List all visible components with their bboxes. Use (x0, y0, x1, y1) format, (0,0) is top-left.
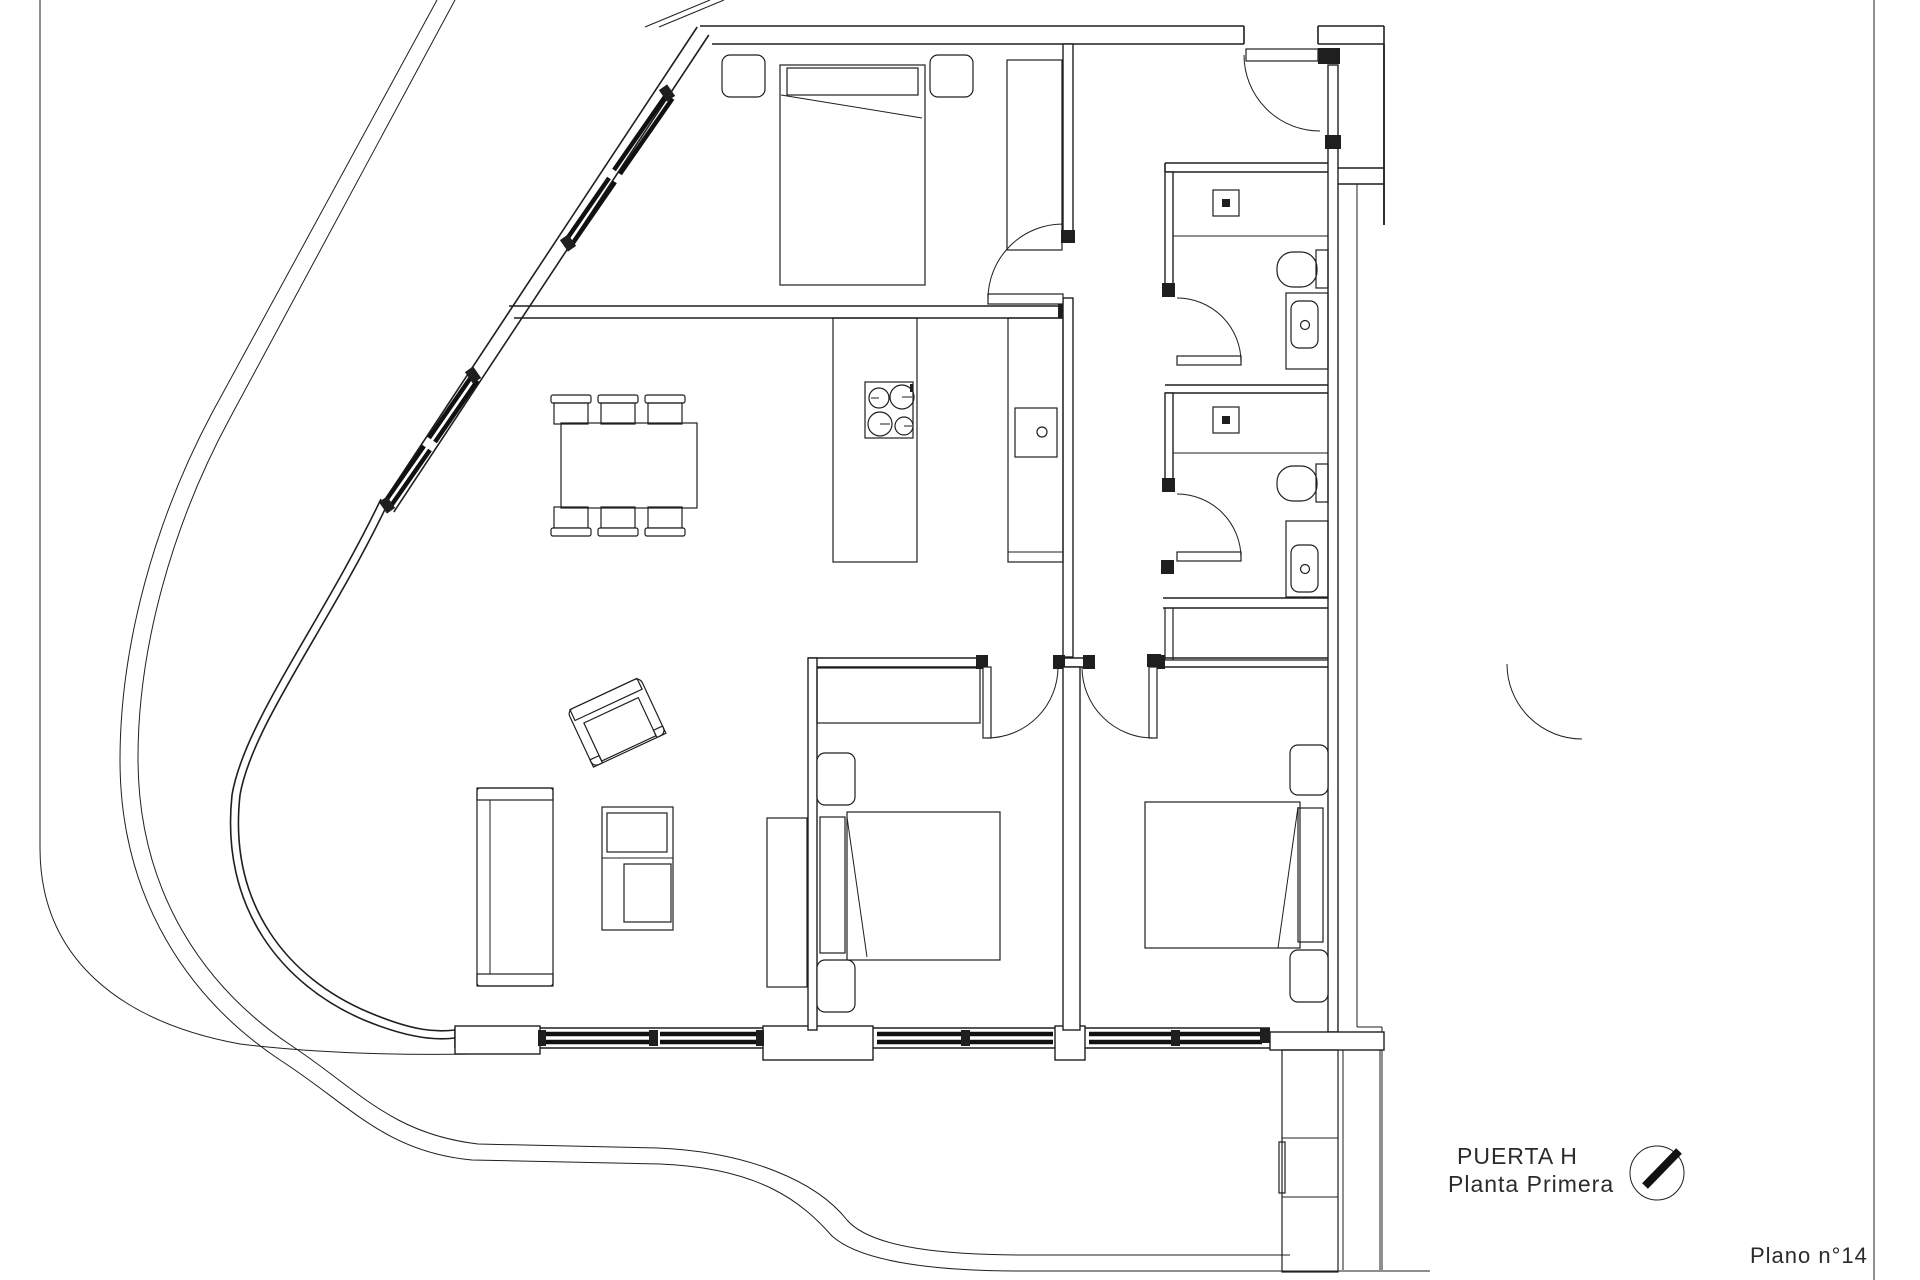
bedroom3-nightstand-bottom (1290, 950, 1328, 1002)
door-label: PUERTA H (1457, 1143, 1578, 1169)
dining-chairs-bottom (551, 507, 685, 536)
bedroom3-door (1082, 667, 1157, 738)
bedroom1-wardrobe (1007, 60, 1062, 250)
bedroom3-headboard (1298, 808, 1323, 942)
south-wall-pillar-1 (763, 1026, 873, 1060)
shower1-drain-icon (1213, 190, 1239, 216)
cooktop (865, 382, 914, 438)
facade-window-2 (379, 366, 481, 513)
corridor-wall (1357, 184, 1382, 1270)
hall-west-wall-upper (1063, 44, 1073, 242)
kitchen-island (833, 318, 917, 562)
bedroom1-door (988, 224, 1063, 304)
bedroom1-nightstand-left (722, 55, 765, 97)
kitchen-north-wall (509, 306, 1063, 318)
facade-window-1 (560, 84, 675, 251)
bathroom1-west-wall (1165, 172, 1173, 285)
hall-west-wall-lower (1063, 298, 1073, 657)
dining-set (551, 395, 697, 536)
bedroom2-closet (817, 668, 980, 723)
bedroom3-windows (1089, 1028, 1270, 1046)
floorplan-drawing: PUERTA H Planta Primera Plano n°14 (0, 0, 1920, 1280)
site-outer-line (40, 0, 540, 1054)
bedroom2-headboard (820, 817, 845, 953)
bedroom2-nightstand-top (817, 753, 855, 805)
bathroom2-west-wall (1165, 393, 1173, 480)
kitchen-counter (1008, 318, 1063, 562)
bedroom2 (817, 668, 1000, 1012)
vanity-sink2 (1286, 521, 1328, 597)
bedroom3 (1145, 745, 1328, 1002)
bedroom3-bed (1145, 802, 1300, 948)
bedroom1-nightstand-right (930, 55, 973, 97)
neighbor-door-arc (1507, 664, 1582, 739)
site-top-diagonal (645, 0, 724, 27)
bedroom2-nightstand-bottom (817, 960, 855, 1012)
kitchen-sink (1015, 408, 1057, 457)
dining-chairs-top (551, 395, 685, 424)
shower2-drain-icon (1213, 407, 1239, 433)
bathroom-divider-wall (1165, 385, 1338, 393)
dining-table (561, 423, 697, 508)
bedroom3-nightstand-top (1290, 745, 1328, 795)
sheet-number: Plano n°14 (1750, 1243, 1868, 1268)
entry-door (1244, 48, 1340, 131)
media-shelf (767, 818, 807, 987)
bedroom2-west-wall (808, 658, 817, 1030)
east-wall (1328, 65, 1338, 1032)
bathroom2 (1173, 407, 1328, 597)
bedroom2-bed (847, 812, 1000, 960)
site-boundary (40, 0, 1430, 1271)
kitchen (551, 318, 1063, 562)
bathroom1-north-wall (1165, 163, 1338, 172)
stair-elevator-core (1270, 1032, 1384, 1272)
toilet2 (1277, 464, 1328, 502)
bedroom2-windows (877, 1030, 1053, 1046)
living-room (477, 677, 807, 987)
north-arrow-icon (1630, 1146, 1684, 1200)
toilet1 (1277, 250, 1328, 288)
bedroom-corridor-wall (808, 658, 1328, 667)
bathroom2-door (1177, 494, 1241, 561)
bathroom1-door (1177, 298, 1241, 365)
south-wall (455, 1026, 1270, 1060)
bathroom1 (1173, 190, 1328, 369)
south-wall-notch (455, 1026, 540, 1054)
bedroom2-door (983, 667, 1058, 738)
title-block: PUERTA H Planta Primera Plano n°14 (1448, 0, 1874, 1280)
south-wall-pillar-2 (1055, 1026, 1085, 1060)
bedroom1 (722, 55, 1062, 285)
floor-label: Planta Primera (1448, 1171, 1614, 1197)
armchair (567, 677, 666, 767)
floorplan-sheet: PUERTA H Planta Primera Plano n°14 (0, 0, 1920, 1280)
sofa (477, 788, 553, 986)
bathroom2-south-wall (1163, 598, 1338, 608)
bedroom3-closet (1165, 608, 1328, 660)
bedroom2-bedroom3-wall (1063, 667, 1080, 1030)
coffee-table-set (602, 807, 673, 930)
lobby-wall (1338, 44, 1384, 225)
vanity-sink1 (1286, 293, 1328, 369)
curved-west-wall (231, 499, 455, 1039)
living-room-windows (538, 1030, 764, 1046)
